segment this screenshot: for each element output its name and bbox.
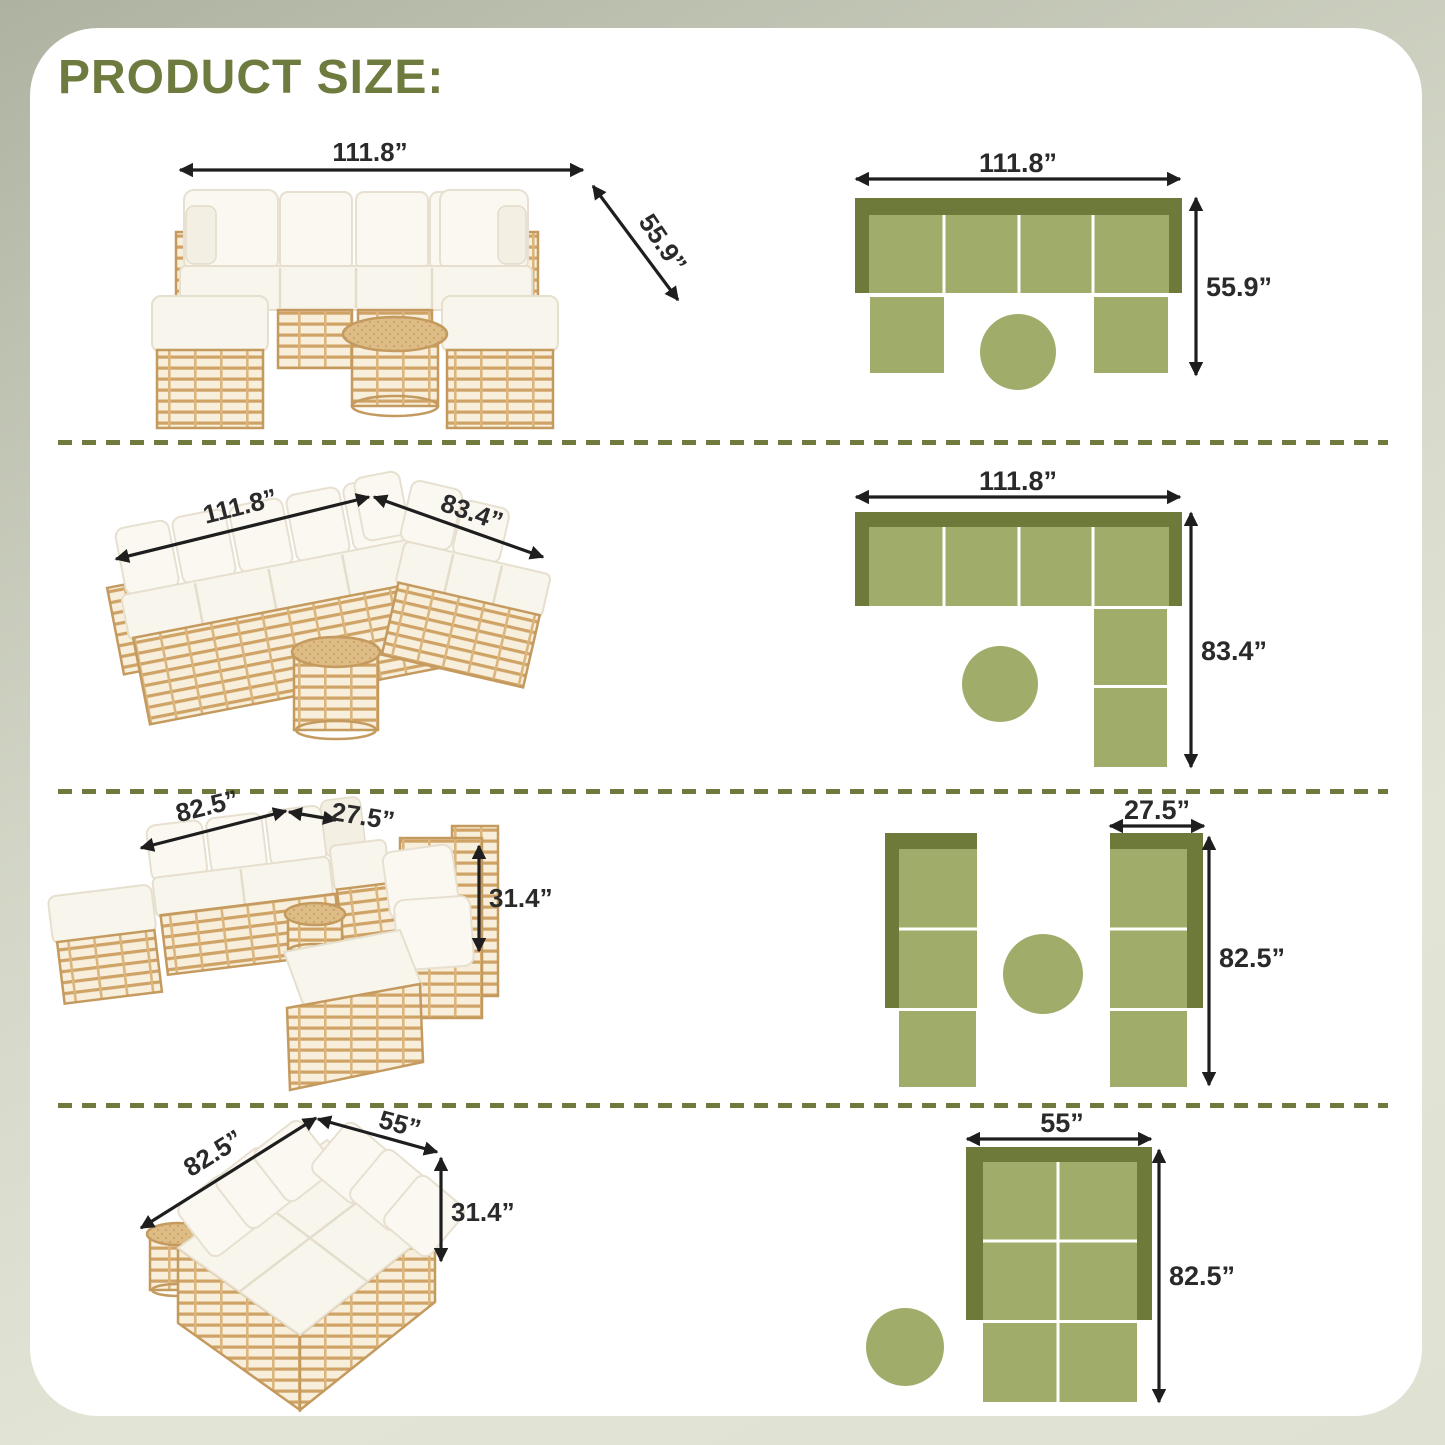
back-pillow: [285, 486, 351, 563]
ottoman-cushion: [442, 296, 558, 352]
coffee-table-top: [343, 317, 447, 351]
height-label: 31.4”: [451, 1197, 515, 1227]
back-pillow: [280, 192, 352, 270]
ottoman-base: [157, 350, 263, 428]
table-top-view: [962, 646, 1038, 722]
chaise-seat-top-view: [1094, 688, 1167, 767]
height-label: 31.4”: [489, 883, 553, 913]
row3-photo-facing-sofas: 82.5” 27.5” 31.4”: [95, 782, 740, 1100]
ottoman-top-view: [899, 1011, 976, 1087]
ottoman-base: [447, 350, 553, 428]
depth-label: 83.4”: [1201, 636, 1267, 666]
row1-photo-u-shape-sofa: 111.8” 55.9”: [100, 135, 725, 435]
width-label: 55”: [1040, 1108, 1084, 1138]
depth-label: 82.5”: [1169, 1261, 1235, 1291]
coffee-table-top: [292, 637, 380, 667]
chaise-seat-top-view: [1094, 609, 1167, 685]
table-top-view: [1003, 934, 1083, 1014]
table-top-view: [980, 314, 1056, 390]
width-label: 111.8”: [979, 148, 1057, 178]
ottoman-base: [57, 930, 162, 1003]
table-top-view: [866, 1308, 944, 1386]
dashed-divider-1: [58, 440, 1388, 445]
row3-diagram-facing-sofas: 27.5” 82.5”: [860, 790, 1300, 1100]
width-label: 111.8”: [979, 466, 1057, 496]
row2-diagram-l-shape: 111.8” 83.4”: [840, 460, 1290, 780]
depth-label: 55.9”: [1206, 272, 1272, 302]
side-pillow: [498, 206, 526, 264]
row4-photo-daybed: 82.5” 55” 31.4”: [95, 1102, 785, 1414]
depth-label: 55.9”: [633, 208, 693, 278]
row4-diagram-daybed: 55” 82.5”: [850, 1105, 1290, 1410]
depth-label: 82.5”: [1219, 943, 1285, 973]
row1-diagram-u-shape: 111.8” 55.9”: [840, 145, 1290, 405]
ottoman-top-view: [870, 297, 944, 373]
back-pillow: [356, 192, 428, 270]
ottoman-top-view: [1094, 297, 1168, 373]
ottoman-top-view: [1110, 1011, 1187, 1087]
wicker-base: [278, 310, 352, 368]
page-title: PRODUCT SIZE:: [58, 50, 444, 105]
row2-photo-l-shape-sofa: 111.8” 83.4”: [80, 462, 770, 772]
side-pillow: [186, 206, 216, 264]
u-shape-sofa-illustration: [152, 190, 558, 428]
side-table-top: [285, 903, 345, 925]
ottoman-cushion: [152, 296, 268, 352]
width-label: 27.5”: [1124, 795, 1190, 825]
width-label: 111.8”: [332, 137, 407, 167]
ottoman-extension-top-view: [983, 1323, 1137, 1402]
